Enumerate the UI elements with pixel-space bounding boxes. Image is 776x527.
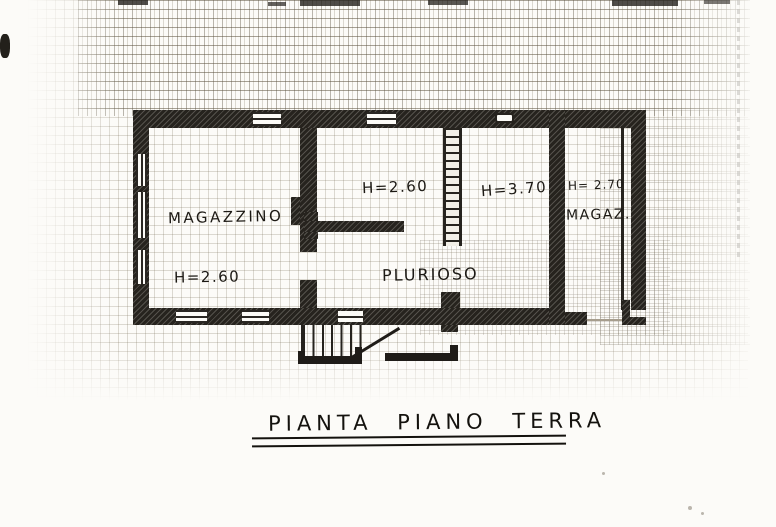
window-icon-top-1 <box>253 112 281 126</box>
partition-wall-magazzino-bump <box>291 197 300 225</box>
window-icon-left-1 <box>136 154 147 186</box>
scan-artifact-top-4 <box>428 0 468 5</box>
stairs-landing-wall-left-cap <box>298 351 305 364</box>
vent-icon-top <box>495 113 514 123</box>
window-icon-left-3 <box>136 250 147 284</box>
floor-plan-drawing: MAGAZZINO H=2.60 H=2.60 PLURIOSO H=3.70 … <box>0 0 776 527</box>
window-icon-bottom-1 <box>176 310 207 323</box>
exterior-wall-right <box>549 110 565 325</box>
room-label-pluriuso: PLURIOSO <box>382 264 479 285</box>
room-label-magazzino: MAGAZZINO <box>168 207 284 227</box>
annex-threshold-line <box>587 319 622 321</box>
annex-wall-bottom-left-stub <box>565 312 587 325</box>
partition-wall-hatched-stub <box>441 292 460 308</box>
scan-artifact-top-6 <box>704 0 730 4</box>
stairs-landing-wall-mid-cap <box>355 347 362 364</box>
height-annotation-right-zone: H=3.70 <box>480 178 547 201</box>
window-icon-bottom-2 <box>242 310 269 323</box>
scanned-floor-plan-page: MAGAZZINO H=2.60 H=2.60 PLURIOSO H=3.70 … <box>0 0 776 527</box>
scan-artifact-top-1 <box>118 0 148 5</box>
height-annotation-pluriuso: H=2.60 <box>362 177 429 197</box>
stairs-landing-wall-right <box>385 353 458 361</box>
partition-wall-hatched <box>443 128 462 246</box>
window-icon-top-2 <box>367 112 396 126</box>
height-annotation-magaz: H= 2.70 <box>568 177 625 193</box>
stairs-landing-wall-left <box>298 356 360 364</box>
room-label-magaz: MAGAZ. <box>566 206 631 223</box>
drawing-caption: PIANTA PIANO TERRA <box>268 408 606 436</box>
annex-wall-right <box>631 110 646 310</box>
scan-artifact-top-5 <box>612 0 678 6</box>
scan-artifact-left-blob <box>0 34 10 58</box>
stairs-landing-wall-right-cap <box>450 345 458 361</box>
height-annotation-magazzino: H=2.60 <box>174 267 241 286</box>
scan-artifact-top-3 <box>300 0 360 6</box>
partition-wall-magazzino-stub <box>300 280 317 308</box>
door-opening-to-stairs <box>338 311 363 322</box>
annex-wall-bottom-right-base <box>622 317 646 325</box>
partition-stub-below-wall <box>441 325 458 332</box>
scan-artifact-top-2 <box>268 2 286 6</box>
interior-stub-wall-horizontal <box>304 221 404 232</box>
window-icon-left-2 <box>136 192 147 238</box>
